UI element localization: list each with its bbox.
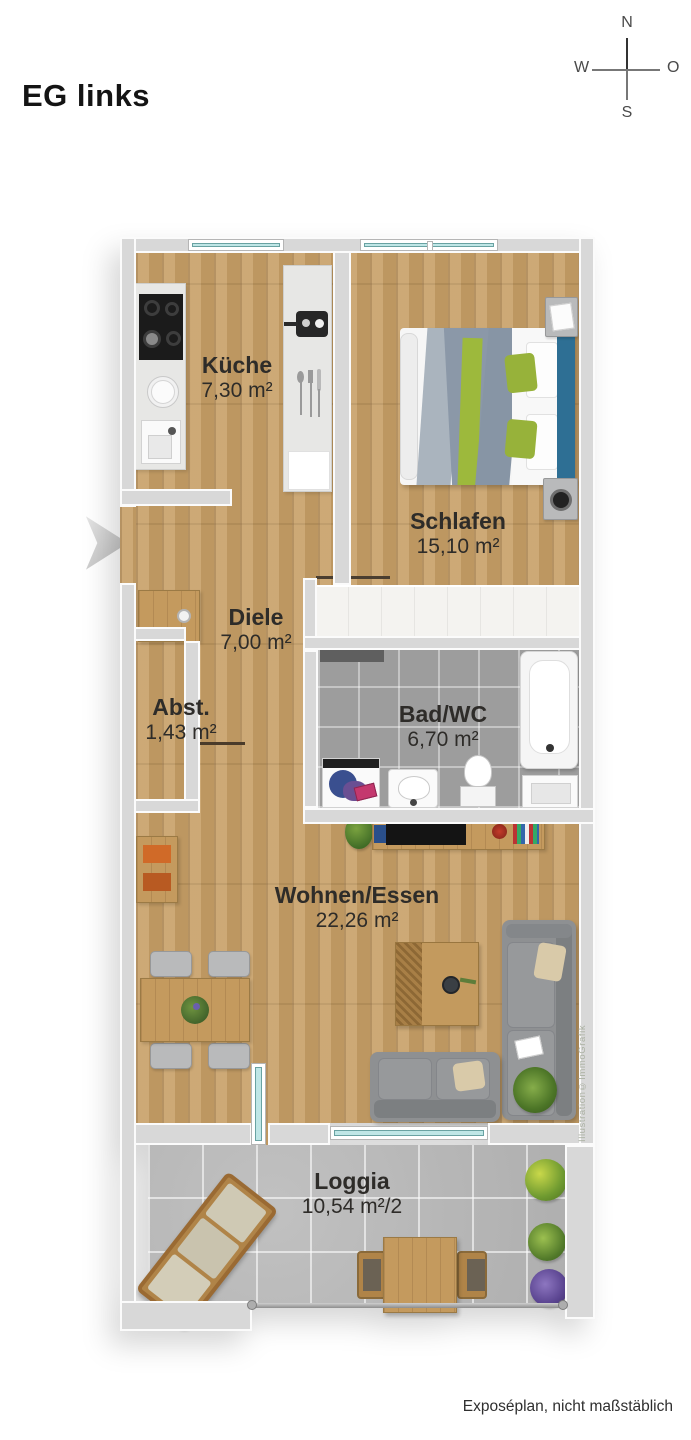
wall-bad-left [303,650,318,808]
tub-faucet [546,744,554,752]
railing-post [247,1300,257,1310]
loggia-table [383,1237,457,1313]
knob [302,319,310,327]
page-title: EG links [22,78,150,114]
seat-cushion [378,1058,432,1100]
flower-dot [193,1003,200,1010]
footer-note: Exposéplan, nicht maßstäblich [463,1398,673,1416]
loggia-chair [457,1251,487,1299]
sofa-armrest [506,924,572,938]
tub-basin [529,660,570,754]
wall-left-upper [120,237,136,507]
knife [317,369,321,391]
room-name: Wohnen/Essen [257,882,457,909]
dining-chair [150,1043,192,1069]
chair-seat [467,1259,485,1291]
knob [315,319,324,328]
label-diele: Diele 7,00 m² [196,604,316,655]
toilet [458,755,498,808]
label-bad: Bad/WC 6,70 m² [383,701,503,752]
loggia-railing [252,1303,564,1308]
cooktop [139,294,183,360]
room-area: 10,54 m²/2 [252,1195,452,1219]
plate-stack [147,376,179,410]
compass-south-line [626,70,628,100]
living-shelf [136,836,178,903]
window-divider [427,241,433,251]
faucet-unit [296,311,328,337]
glass [334,1130,484,1136]
pillow-green [504,419,537,459]
rattan-tray [396,943,422,1025]
room-area: 7,00 m² [196,631,316,655]
room-name: Bad/WC [383,701,503,728]
plant [513,1067,557,1113]
island-panel [288,451,330,490]
pillow-green [504,353,538,394]
twig [460,978,476,985]
room-area: 6,70 m² [383,728,503,752]
label-abst: Abst. 1,43 m² [121,694,241,745]
vase [442,976,460,994]
room-name: Loggia [252,1168,452,1195]
wall-kitchen-stub [120,489,232,506]
window-loggia [330,1126,488,1140]
wall-kueche-schlafen [333,251,351,585]
faucet [410,799,417,806]
bowl [177,609,191,623]
burner [144,300,160,316]
wall-loggia-c [488,1123,581,1145]
nightstand [543,478,578,520]
papers [549,303,574,332]
glass [192,243,280,247]
compass-east-label: O [667,59,679,77]
flowers-red [492,824,507,839]
plant-yellow-green [525,1159,567,1201]
wall-loggia-right [565,1145,595,1319]
spoon-handle [300,381,303,415]
wm-panel [323,759,379,768]
fork-handle [310,381,313,417]
label-kueche: Küche 7,30 m² [177,352,297,403]
burner [166,331,181,346]
books-row [513,824,539,844]
faucet [168,427,176,435]
schlafen-door-line [316,576,390,579]
toilet-bowl [464,755,492,787]
railing-post [558,1300,568,1310]
room-area: 1,43 m² [121,721,241,745]
washing-machine [322,758,380,808]
wall-loggia-b [268,1123,330,1145]
dining-chair [208,951,250,977]
room-area: 22,26 m² [257,909,457,933]
bathtub [520,651,578,769]
books-blue [374,825,386,843]
coffee-table [395,942,479,1026]
entrance-threshold [120,505,136,583]
compass-ew-line [592,69,660,71]
room-area: 15,10 m² [388,535,528,559]
room-name: Abst. [121,694,241,721]
spout [284,322,298,326]
knife-handle [318,389,321,417]
wall-bad-top [303,636,581,650]
compass-north-label: N [621,14,633,32]
bath-cabinet [522,775,578,808]
cistern [460,786,496,807]
duvet-fold [400,333,418,480]
bath-shelf [320,650,384,662]
chair-seat [363,1259,381,1291]
room-area: 7,30 m² [177,379,297,403]
plant-green [528,1223,566,1261]
cutlery-icon [296,361,322,423]
kitchen-sink [141,420,181,464]
wall-loggia-a [134,1123,252,1145]
room-name: Küche [177,352,297,379]
pot [143,330,161,348]
room-name: Schlafen [388,508,528,535]
shelf-items-orange [143,845,171,863]
compass-south-label: S [622,104,633,122]
tv [386,823,466,845]
watermark: Illustration©ImmoGrafik [577,982,588,1142]
room-name: Diele [196,604,316,631]
wall-abst-top [134,627,186,641]
plate [151,380,175,404]
label-loggia: Loggia 10,54 m²/2 [252,1168,452,1219]
wall-bad-bottom [303,808,595,824]
floorplan-page: EG links N W O S [0,0,691,1440]
sofa-small [370,1052,500,1122]
glass [255,1067,262,1141]
loggia-door-leaf [251,1063,266,1145]
compass-north-line [626,38,628,70]
sofa-backrest [374,1100,496,1118]
nightstand [545,297,578,337]
window-schlafen [360,239,498,251]
wall-loggia-stub [120,1301,252,1331]
built-in-wardrobe [315,585,581,637]
basin [398,776,430,800]
compass-rose-icon: N W O S [572,12,682,120]
table-plant [181,996,209,1024]
dining-table [140,978,250,1042]
window-kueche [188,239,284,251]
label-schlafen: Schlafen 15,10 m² [388,508,528,559]
wall-abst-bottom [134,799,200,813]
basin [148,435,172,459]
pillow-beige [452,1060,486,1092]
dining-chair [208,1043,250,1069]
headboard-blue [557,328,575,485]
compass-west-label: W [574,59,589,77]
lamp [550,489,572,511]
burner [165,302,179,316]
bed [400,328,575,485]
washbasin [388,769,438,808]
floorplan: Küche 7,30 m² Schlafen 15,10 m² Diele 7,… [120,237,595,1332]
dining-chair [150,951,192,977]
shelf-items-orange [143,873,171,891]
label-wohnen: Wohnen/Essen 22,26 m² [257,882,457,933]
cabinet-inlay [531,783,571,804]
